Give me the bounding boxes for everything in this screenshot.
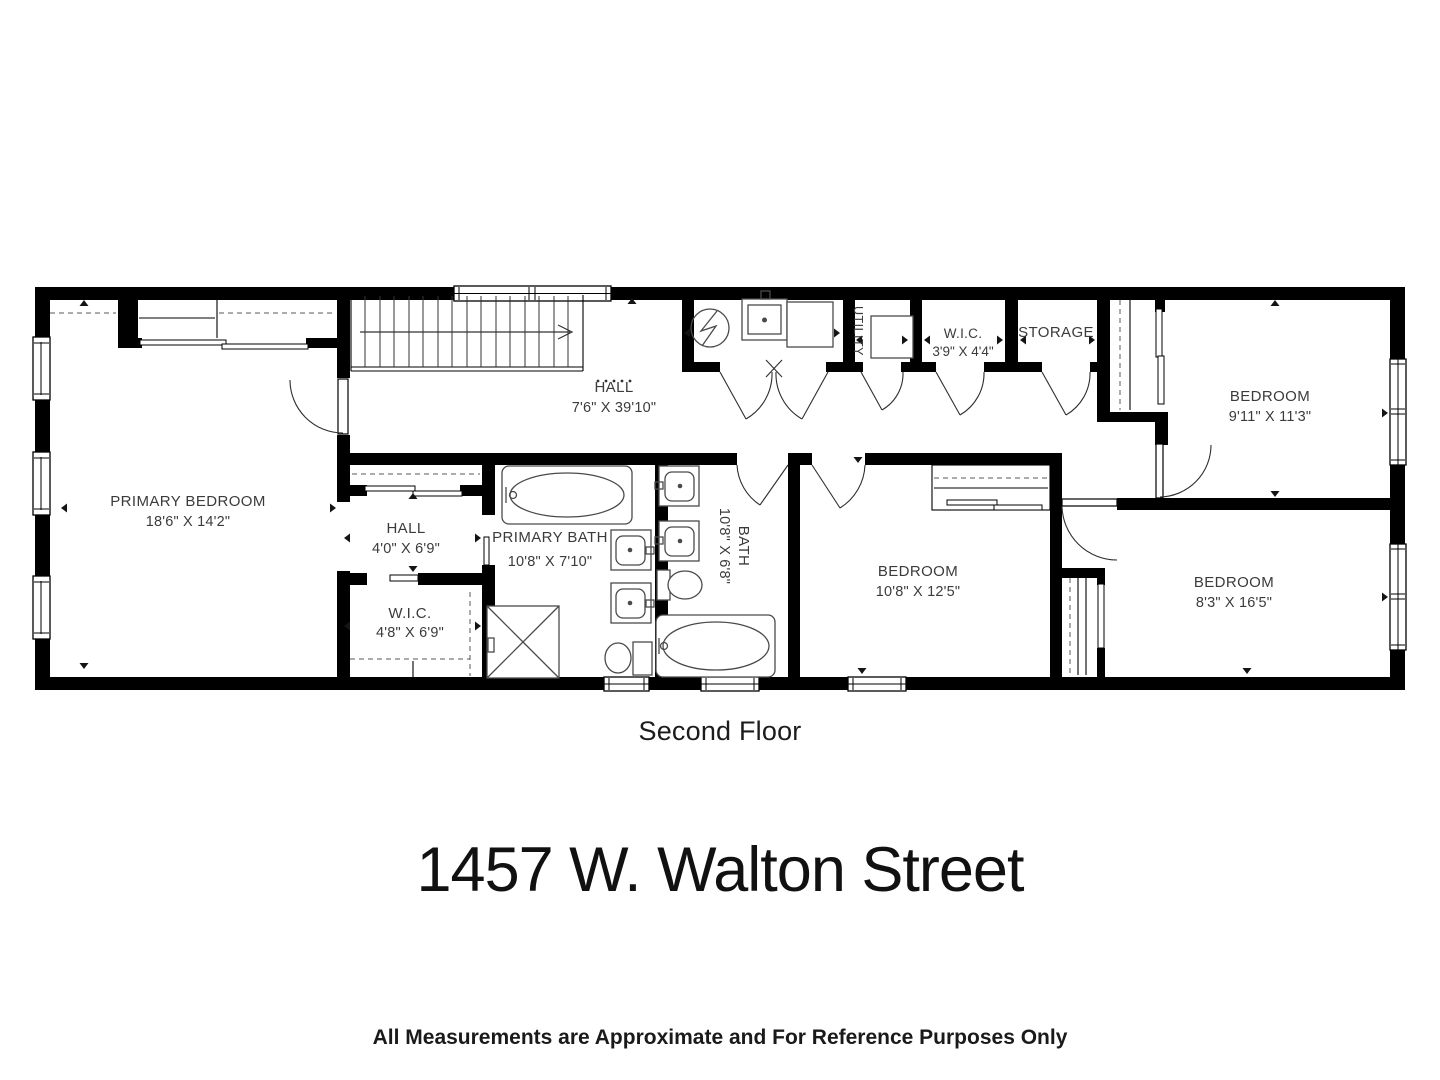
shower-icon (487, 606, 559, 678)
room-dims-wic-primary: 4'8" X 6'9" (376, 625, 444, 641)
sliding-door (994, 505, 1042, 510)
room-label-utility-group: UTILITY (851, 306, 865, 356)
room-dims-bath: 10'8" X 6'8" (716, 508, 732, 584)
laundry-sink-icon (742, 291, 787, 340)
door-wic-small (936, 372, 984, 415)
window-right-ne (1390, 359, 1406, 465)
window-top-stairs (454, 286, 611, 301)
room-label-primary-bedroom: PRIMARY BEDROOM (110, 493, 265, 510)
sliding-door (947, 500, 997, 505)
floor-label: Second Floor (0, 716, 1440, 747)
window-bottom-1 (604, 677, 649, 691)
window-left-2 (33, 452, 50, 515)
dryer-icon (787, 302, 833, 347)
room-dims-primary-bath: 10'8" X 7'10" (508, 554, 593, 570)
room-label-wic-primary: W.I.C. (388, 605, 431, 622)
primary-bath-sink-icon (611, 583, 654, 623)
door-bedroom-ne (1156, 444, 1211, 498)
hall-bath-tub-icon (656, 615, 775, 677)
primary-bath-sink-icon (611, 530, 654, 570)
room-label-bath-group: BATH 10'8" X 6'8" (716, 508, 752, 584)
sliding-door (1158, 356, 1164, 404)
room-label-storage: STORAGE (1018, 324, 1094, 341)
floor-plan-drawing: PRIMARY BEDROOM 18'6" X 14'2" HALL 7'6" … (0, 0, 1440, 760)
room-label-wic-small: W.I.C. (944, 326, 983, 341)
disclaimer-text: All Measurements are Approximate and For… (0, 1026, 1440, 1050)
door-storage (1042, 372, 1090, 415)
room-dims-wic-small: 3'9" X 4'4" (932, 344, 993, 359)
stair-direction-arrow (360, 325, 572, 339)
room-dims-hall-main: 7'6" X 39'10" (572, 400, 657, 416)
sliding-door (1098, 584, 1104, 648)
door-bedroom-se (1062, 499, 1117, 560)
door-hall-bath (737, 465, 788, 505)
sliding-door (1156, 309, 1162, 357)
room-label-utility: UTILITY (851, 306, 865, 356)
window-left-3 (33, 576, 50, 639)
sliding-door (140, 340, 226, 345)
pocket-door (484, 537, 489, 565)
address-title: 1457 W. Walton Street (0, 834, 1440, 906)
sliding-door (365, 486, 415, 491)
primary-bath-toilet-icon (605, 642, 652, 675)
room-label-bath: BATH (735, 526, 752, 567)
room-label-bedroom-se: BEDROOM (1194, 574, 1274, 591)
washer-icon (691, 309, 729, 347)
room-dims-primary-bedroom: 18'6" X 14'2" (146, 514, 231, 530)
staircase (351, 295, 631, 382)
door-primary-bedroom (290, 379, 348, 434)
hall-bath-sink-icon (655, 521, 699, 561)
room-dims-bedroom-ne: 9'11" X 11'3" (1229, 409, 1311, 425)
water-heater-icon (871, 316, 913, 358)
window-bottom-3 (848, 677, 906, 691)
door-laundry-double (720, 360, 828, 419)
sliding-door (222, 344, 308, 349)
hall-bath-toilet-icon (657, 570, 702, 600)
room-label-bedroom-mid: BEDROOM (878, 563, 958, 580)
room-label-bedroom-ne: BEDROOM (1230, 388, 1310, 405)
door-bedroom-mid (812, 465, 865, 508)
sliding-door (413, 491, 462, 496)
hall-bath-sink-icon (655, 466, 699, 506)
room-dims-bedroom-se: 8'3" X 16'5" (1196, 595, 1272, 611)
window-left-1 (33, 337, 50, 400)
window-bottom-2 (701, 677, 759, 691)
room-label-hall-main: HALL (594, 379, 633, 396)
room-labels: PRIMARY BEDROOM 18'6" X 14'2" HALL 7'6" … (110, 306, 1311, 641)
window-right-se (1390, 544, 1406, 650)
room-dims-hall-small: 4'0" X 6'9" (372, 541, 440, 557)
door-utility (861, 372, 903, 410)
primary-bath-tub-icon (502, 466, 632, 524)
room-dims-bedroom-mid: 10'8" X 12'5" (876, 584, 961, 600)
room-label-hall-small: HALL (386, 520, 425, 537)
room-label-primary-bath: PRIMARY BATH (492, 529, 608, 546)
floor-plan-page: PRIMARY BEDROOM 18'6" X 14'2" HALL 7'6" … (0, 0, 1440, 1080)
pocket-door (390, 575, 418, 581)
